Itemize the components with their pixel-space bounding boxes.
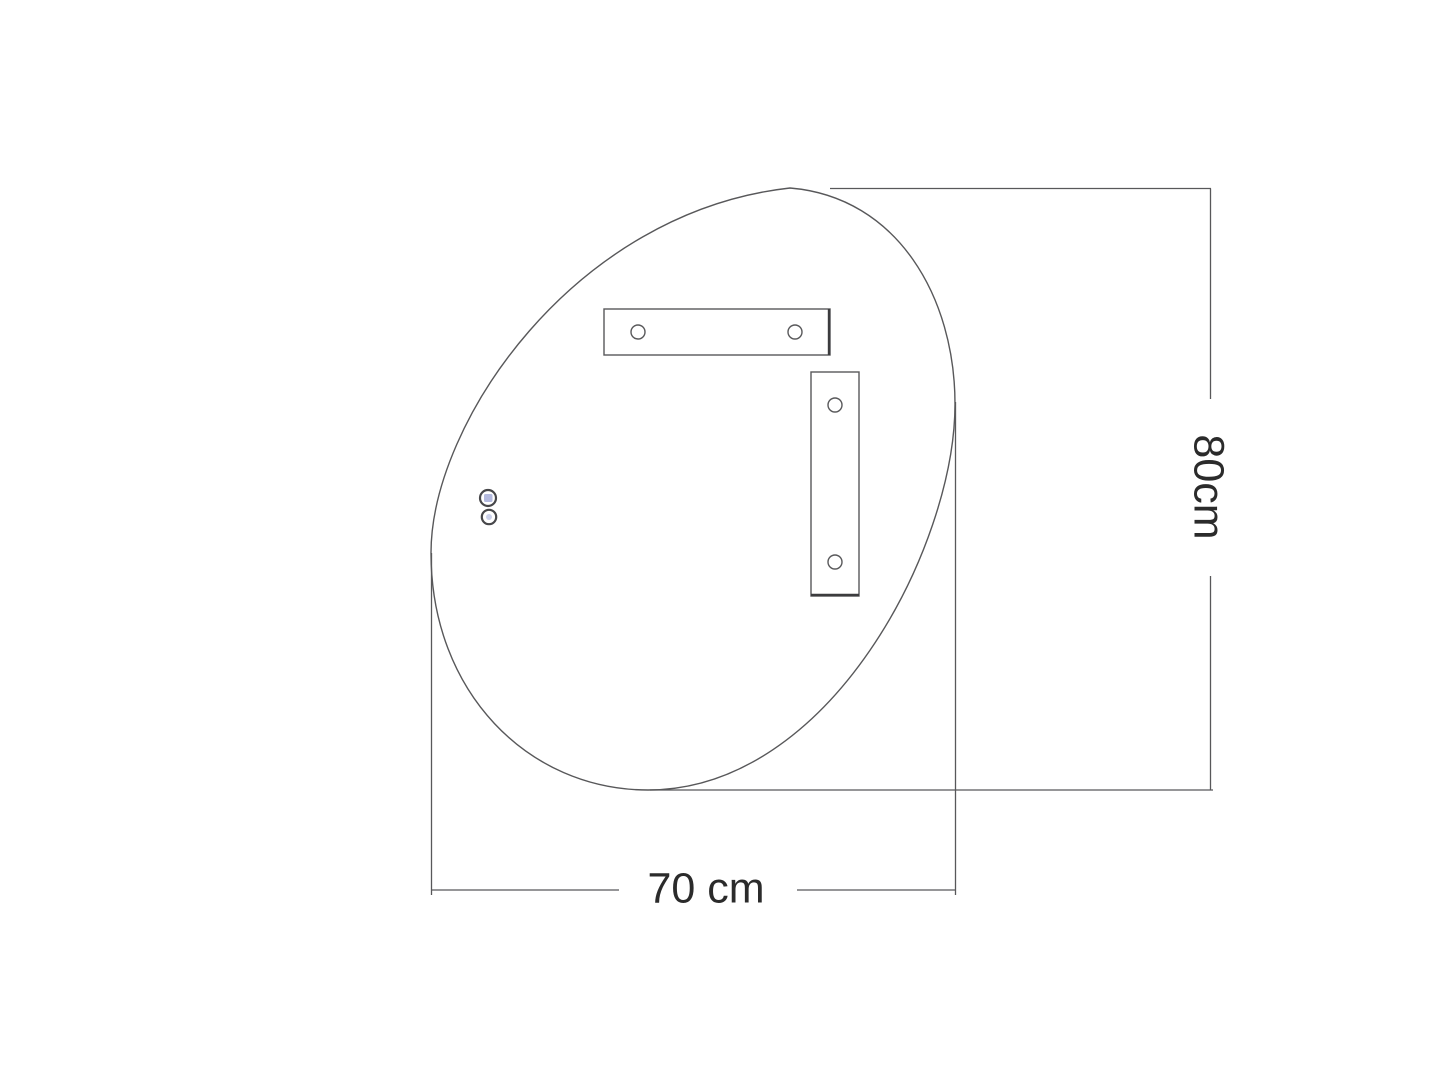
- mirror-outline: [431, 188, 955, 790]
- screw-hole: [828, 398, 842, 412]
- screw-hole: [631, 325, 645, 339]
- drawing-canvas: 80cm 70 cm: [0, 0, 1440, 1080]
- technical-drawing: [0, 0, 1440, 1080]
- height-dimension-label: 80cm: [1187, 434, 1230, 539]
- width-dimension-label: 70 cm: [647, 868, 764, 911]
- horizontal-bracket: [604, 309, 830, 355]
- screw-hole: [788, 325, 802, 339]
- sensor-glyph: [484, 494, 493, 502]
- sensor-glyph: [486, 514, 492, 520]
- vertical-bracket: [811, 372, 859, 596]
- screw-hole: [828, 555, 842, 569]
